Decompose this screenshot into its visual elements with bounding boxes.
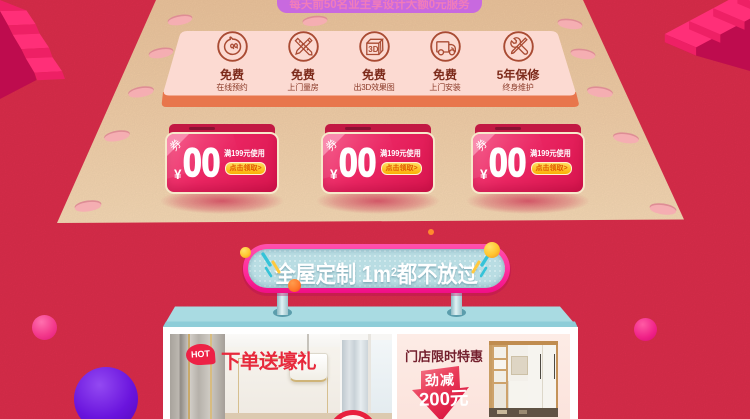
svg-text:3D: 3D — [368, 45, 378, 54]
